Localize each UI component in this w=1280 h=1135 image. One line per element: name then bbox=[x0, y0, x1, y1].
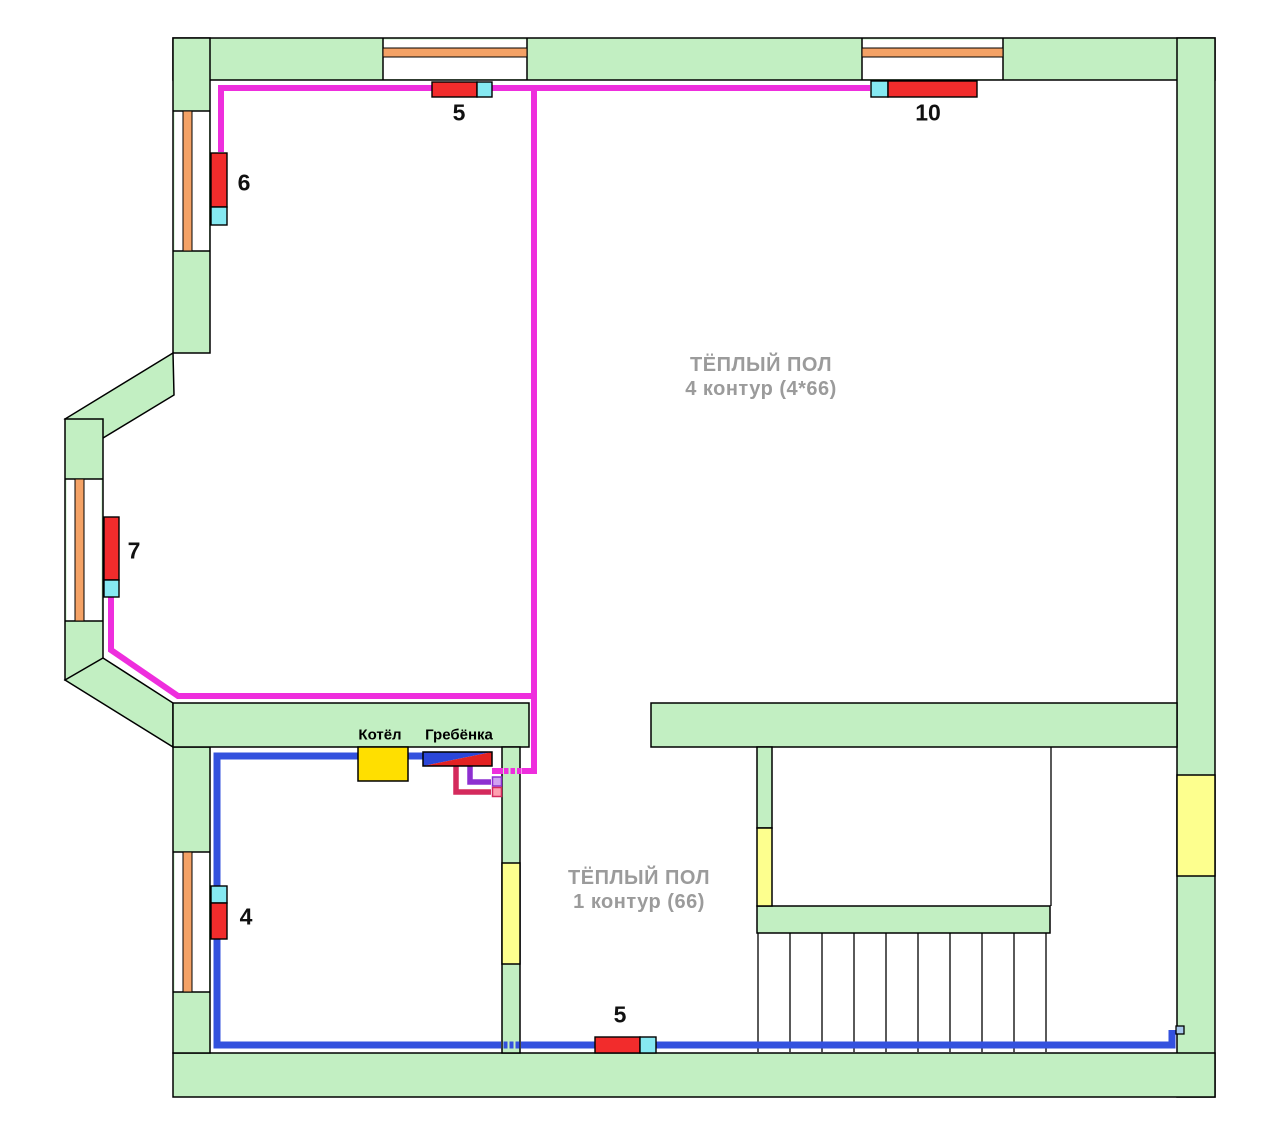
pipe-supply-purple bbox=[470, 766, 491, 782]
valve-left-lower bbox=[211, 886, 227, 903]
pipe-dash bbox=[517, 768, 522, 774]
wall-middle-band-right bbox=[651, 703, 1177, 747]
radiator-label-left-upper: 6 bbox=[238, 170, 251, 197]
pipe-magenta-center-vertical bbox=[522, 85, 534, 771]
wall-bottom bbox=[173, 1053, 1215, 1097]
room-label-1-contour: ТЁПЛЫЙ ПОЛ 1 контур (66) bbox=[568, 866, 710, 914]
pipe-magenta-top bbox=[221, 88, 870, 152]
pipe-blue-left bbox=[217, 756, 501, 1045]
door-stairs bbox=[757, 828, 772, 906]
door-right-wall bbox=[1177, 775, 1215, 876]
radiator-label-top-left: 5 bbox=[453, 100, 466, 127]
radiator-label-bottom: 5 bbox=[614, 1002, 627, 1029]
valve-left-upper bbox=[211, 207, 227, 225]
valve-top-left bbox=[477, 82, 492, 97]
radiator-top-right bbox=[888, 81, 977, 97]
window-left-lower-glass bbox=[183, 852, 192, 992]
pipe-return-end bbox=[493, 788, 502, 797]
pipe-dash bbox=[504, 1042, 508, 1049]
window-top-left-opening bbox=[383, 40, 527, 80]
room-label-4-contour: ТЁПЛЫЙ ПОЛ 4 контур (4*66) bbox=[685, 353, 837, 401]
room-label-4-contour-line2: 4 контур (4*66) bbox=[685, 377, 837, 401]
walls bbox=[65, 38, 1215, 1097]
pipe-dash bbox=[511, 768, 516, 774]
pipe-dash bbox=[516, 1042, 520, 1049]
window-top-right-opening bbox=[862, 40, 1003, 80]
wall-right bbox=[1177, 38, 1215, 1097]
wall-bay-lower-diagonal bbox=[65, 658, 173, 747]
window-top-right-glass bbox=[862, 48, 1003, 57]
window-top-left-glass bbox=[383, 48, 527, 57]
manifold bbox=[423, 752, 492, 766]
boiler-label: Котёл bbox=[358, 727, 401, 744]
pipe-supply-end bbox=[493, 777, 502, 786]
room-label-1-contour-line1: ТЁПЛЫЙ ПОЛ bbox=[568, 866, 710, 890]
pipe-magenta-bay bbox=[111, 594, 533, 696]
room-label-4-contour-line1: ТЁПЛЫЙ ПОЛ bbox=[685, 353, 837, 377]
floor-plan: Котёл Гребёнка 5 10 6 7 4 5 ТЁПЛЫЙ ПОЛ 4… bbox=[0, 0, 1280, 1135]
door-center-column bbox=[502, 863, 520, 964]
window-left-upper-glass bbox=[183, 111, 192, 251]
valve-bay bbox=[104, 580, 119, 597]
radiator-left-upper bbox=[211, 153, 227, 207]
manifold-label: Гребёнка bbox=[425, 727, 493, 744]
radiator-label-left-lower: 4 bbox=[240, 904, 253, 931]
valve-bottom bbox=[640, 1037, 656, 1053]
pipe-return-red bbox=[456, 766, 491, 792]
radiator-label-bay: 7 bbox=[128, 538, 141, 565]
wall-stairs-left-strip bbox=[757, 747, 772, 828]
radiator-bay bbox=[104, 517, 119, 580]
pipe-dash bbox=[504, 768, 509, 774]
valve-top-right bbox=[871, 81, 888, 97]
window-bay-glass bbox=[75, 479, 84, 621]
stairs-base bbox=[757, 906, 1050, 933]
floor-plan-drawing bbox=[0, 0, 1280, 1135]
radiator-bottom bbox=[595, 1037, 640, 1053]
pipe-dash bbox=[510, 1042, 514, 1049]
pipe-magenta-stub bbox=[492, 768, 503, 774]
room-label-1-contour-line2: 1 контур (66) bbox=[568, 890, 710, 914]
pipe-magenta-wall-pass bbox=[492, 768, 522, 774]
radiator-label-top-right: 10 bbox=[915, 100, 941, 127]
pipe-blue-end-vent bbox=[1176, 1026, 1184, 1034]
stairs bbox=[758, 747, 1051, 1052]
wall-top bbox=[173, 38, 1215, 80]
pipe-blue-wall-pass bbox=[504, 1042, 520, 1049]
radiator-left-lower bbox=[211, 903, 227, 939]
radiator-top-left bbox=[432, 82, 477, 97]
boiler bbox=[358, 747, 408, 781]
